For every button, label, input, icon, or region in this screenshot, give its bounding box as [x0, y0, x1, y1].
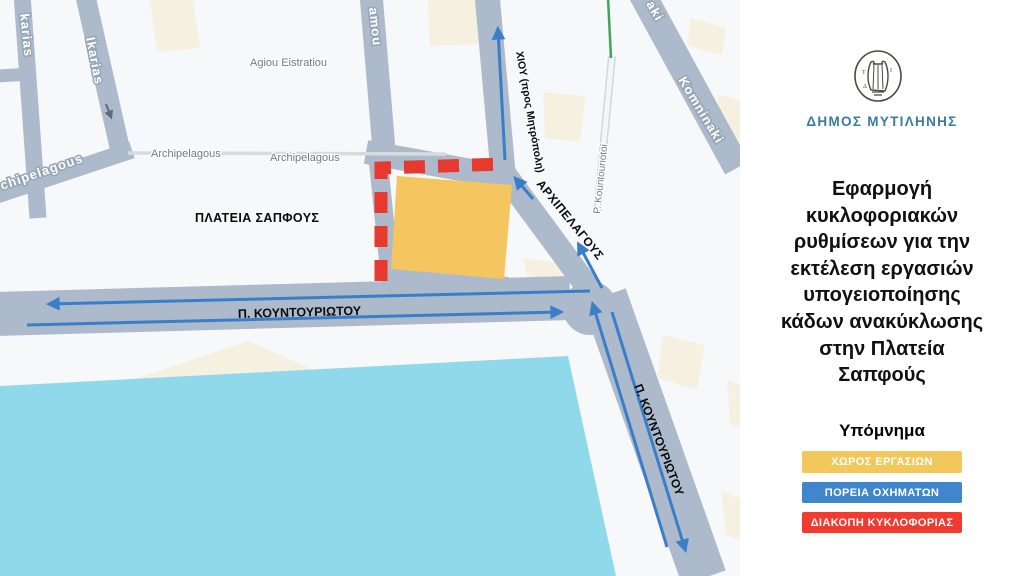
- title-line: κυκλοφοριακών: [750, 203, 1014, 230]
- work-area-polygon: [391, 176, 512, 279]
- info-panel: T I Δ ΔΗΜΟΣ ΜΥΤΙΛΗΝΗΣ Εφαρμογή κυκλοφορι…: [740, 0, 1024, 576]
- street-label-archipelagous-2: Archipelagous: [270, 152, 340, 164]
- svg-text:T: T: [862, 70, 866, 76]
- annotation-plateia-sapfous: ΠΛΑΤΕΙΑ ΣΑΠΦΟΥΣ: [195, 211, 319, 225]
- title-line: στην Πλατεία: [750, 336, 1014, 363]
- map-canvas: karias Ikarias chipelagous amou aki Komn…: [0, 0, 740, 576]
- legend-title: Υπόμνημα: [740, 421, 1024, 441]
- sea-water: [0, 356, 616, 576]
- legend-item-traffic-closure: ΔΙΑΚΟΠΗ ΚΥΚΛΟΦΟΡΙΑΣ: [802, 512, 962, 534]
- street-label-archipelagous-1: Archipelagous: [151, 148, 221, 160]
- street-label-agiou-eistratiou: Agiou Eistratiou: [250, 57, 327, 69]
- map: karias Ikarias chipelagous amou aki Komn…: [0, 0, 740, 576]
- poster-title: Εφαρμογή κυκλοφοριακών ρυθμίσεων για την…: [750, 176, 1014, 389]
- title-line: υπογειοποίησης: [750, 282, 1014, 309]
- municipality-name: ΔΗΜΟΣ ΜΥΤΙΛΗΝΗΣ: [740, 114, 1024, 129]
- poster: karias Ikarias chipelagous amou aki Komn…: [0, 0, 1024, 576]
- street-junction: [563, 281, 617, 335]
- street-branch: [0, 74, 30, 76]
- title-line: εκτέλεση εργασιών: [750, 256, 1014, 283]
- title-line: κάδων ανακύκλωσης: [750, 309, 1014, 336]
- svg-text:I: I: [890, 68, 892, 74]
- title-line: ρυθμίσεων για την: [750, 229, 1014, 256]
- legend-item-work-area: ΧΩΡΟΣ ΕΡΓΑΣΙΩΝ: [802, 451, 962, 473]
- title-line: Εφαρμογή: [750, 176, 1014, 203]
- title-line: Σαπφούς: [750, 362, 1014, 389]
- legend-item-vehicle-route: ΠΟΡΕΙΑ ΟΧΗΜΑΤΩΝ: [802, 482, 962, 504]
- lyre-seal-icon: T I Δ: [852, 48, 904, 106]
- svg-text:Δ: Δ: [863, 84, 867, 90]
